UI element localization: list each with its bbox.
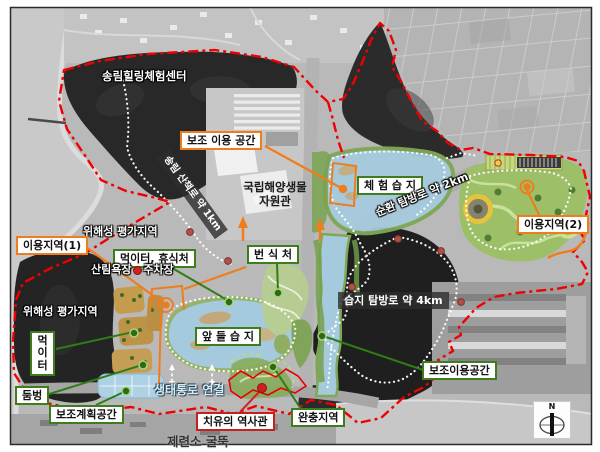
label-healing-history-hall: 치유의 역사관 [196, 412, 275, 431]
label-feeding-site-vertical: 먹이터 [30, 331, 55, 376]
parking-marker-icon [133, 266, 142, 275]
circular-garden-center [474, 205, 483, 214]
label-auxiliary-use-space-2: 보조이용공간 [422, 361, 497, 380]
orange-dot [162, 301, 169, 308]
compass: N [533, 401, 571, 439]
label-forest-healing-center: 송림힐링체험센터 [102, 70, 187, 84]
label-risk-assessment-upper: 위해성 평가지역 [83, 225, 158, 238]
label-apdeul-wetland: 앞 들 습 지 [195, 327, 261, 346]
red-dot [258, 384, 267, 393]
label-marine-institute: 국립해양생물 자원관 [232, 181, 318, 209]
label-wetland-trail-4km: 습지 탐방로 약 4km [338, 292, 449, 309]
label-dumbeong: 둠벙 [15, 386, 49, 405]
label-auxiliary-plan-space: 보조계획공간 [49, 405, 124, 424]
garden-marker [495, 160, 501, 166]
orange-dot [339, 185, 347, 193]
label-eco-corridor: 생태통로 연결 [154, 383, 224, 397]
label-smelter-chimney: 제련소 굴뚝 [167, 434, 229, 449]
label-risk-assessment-lower: 위해성 평가지역 [23, 305, 98, 318]
label-marine-institute-line2: 자원관 [232, 195, 318, 209]
label-breeding-site: 번 식 처 [247, 245, 299, 264]
campus-parking [266, 132, 298, 146]
label-auxiliary-use-space: 보조 이용 공간 [180, 131, 262, 150]
orange-dot [523, 183, 530, 190]
label-use-area-2: 이용지역(2) [517, 215, 589, 234]
label-buffer-area: 완충지역 [291, 408, 345, 427]
compass-rose-icon [534, 403, 570, 439]
label-marine-institute-line1: 국립해양생물 [232, 181, 318, 195]
planning-map: 송림힐링체험센터 보조 이용 공간 국립해양생물 자원관 송림 산책로 약 1k… [0, 0, 600, 452]
label-use-area-1: 이용지역(1) [16, 236, 88, 255]
